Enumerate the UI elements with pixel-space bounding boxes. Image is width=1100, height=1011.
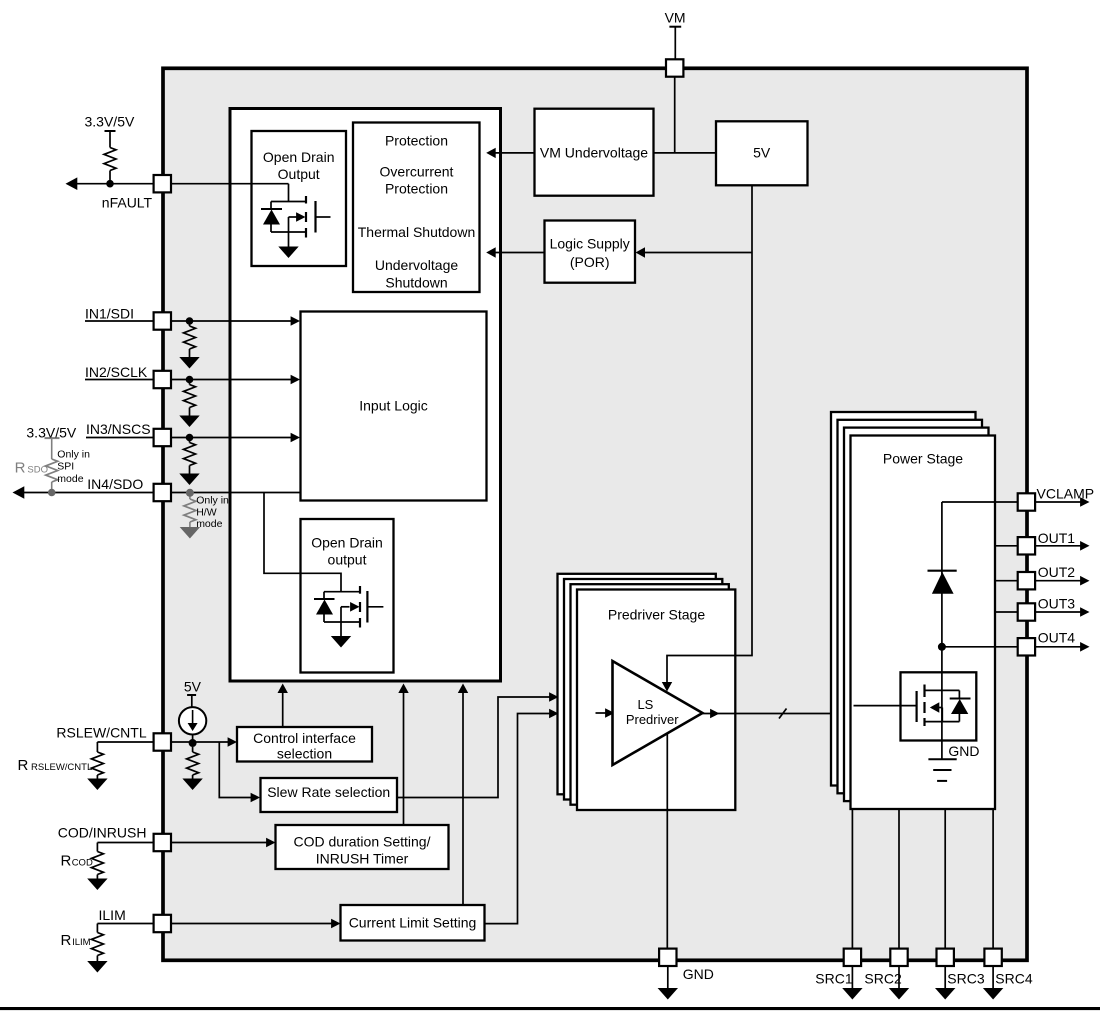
- svg-text:3.3V/5V: 3.3V/5V: [26, 425, 76, 441]
- svg-text:IN1/SDI: IN1/SDI: [85, 306, 134, 322]
- svg-text:IN4/SDO: IN4/SDO: [87, 476, 143, 492]
- svg-text:OUT3: OUT3: [1038, 596, 1076, 612]
- svg-text:Predriver: Predriver: [626, 712, 679, 727]
- svg-text:ILIM: ILIM: [72, 937, 91, 948]
- svg-text:IN3/NSCS: IN3/NSCS: [86, 421, 151, 437]
- svg-text:SRC1: SRC1: [815, 971, 853, 987]
- svg-text:Control interface: Control interface: [253, 730, 356, 746]
- svg-text:Shutdown: Shutdown: [385, 274, 447, 290]
- svg-text:VM Undervoltage: VM Undervoltage: [540, 144, 648, 160]
- svg-text:COD/INRUSH: COD/INRUSH: [58, 825, 147, 841]
- svg-text:IN2/SCLK: IN2/SCLK: [85, 364, 148, 380]
- svg-text:SDO: SDO: [27, 464, 48, 475]
- svg-text:Thermal Shutdown: Thermal Shutdown: [358, 224, 476, 240]
- svg-text:OUT2: OUT2: [1038, 564, 1076, 580]
- svg-text:output: output: [328, 552, 367, 568]
- svg-text:VM: VM: [665, 10, 686, 26]
- svg-text:Open Drain: Open Drain: [311, 535, 383, 551]
- svg-text:SRC4: SRC4: [995, 971, 1033, 987]
- svg-text:Open Drain: Open Drain: [263, 149, 335, 165]
- svg-text:Only in: Only in: [57, 449, 90, 461]
- svg-text:5V: 5V: [184, 679, 202, 695]
- svg-text:VCLAMP: VCLAMP: [1037, 486, 1095, 502]
- svg-text:R: R: [18, 757, 29, 774]
- svg-text:GND: GND: [948, 743, 979, 759]
- svg-text:Slew Rate selection: Slew Rate selection: [267, 784, 390, 800]
- svg-text:COD: COD: [72, 858, 93, 869]
- svg-text:COD duration Setting/: COD duration Setting/: [294, 834, 431, 850]
- svg-text:3.3V/5V: 3.3V/5V: [85, 114, 135, 130]
- svg-text:R: R: [61, 853, 72, 870]
- svg-text:Undervoltage: Undervoltage: [375, 257, 458, 273]
- svg-text:mode: mode: [57, 473, 83, 485]
- svg-text:LS: LS: [637, 697, 653, 712]
- svg-text:R: R: [61, 932, 72, 949]
- svg-text:Input Logic: Input Logic: [359, 398, 428, 414]
- svg-text:RSLEW/CNTL: RSLEW/CNTL: [56, 725, 146, 741]
- svg-text:R: R: [15, 459, 26, 476]
- svg-text:mode: mode: [196, 518, 222, 530]
- svg-text:H/W: H/W: [196, 507, 217, 519]
- svg-text:nFAULT: nFAULT: [102, 195, 153, 211]
- svg-text:Protection: Protection: [385, 132, 448, 148]
- svg-text:Power Stage: Power Stage: [883, 451, 963, 467]
- svg-text:SPI: SPI: [57, 461, 74, 473]
- svg-text:GND: GND: [683, 966, 714, 982]
- svg-text:RSLEW/CNTL: RSLEW/CNTL: [31, 762, 92, 773]
- svg-text:Only in: Only in: [196, 495, 229, 507]
- svg-text:(POR): (POR): [570, 254, 610, 270]
- svg-text:Overcurrent: Overcurrent: [380, 164, 454, 180]
- svg-text:Current Limit Setting: Current Limit Setting: [349, 915, 477, 931]
- svg-text:Logic Supply: Logic Supply: [550, 236, 630, 252]
- svg-text:ILIM: ILIM: [99, 907, 126, 923]
- svg-text:selection: selection: [277, 746, 332, 762]
- svg-text:5V: 5V: [753, 144, 771, 160]
- svg-text:SRC3: SRC3: [947, 971, 985, 987]
- svg-text:OUT1: OUT1: [1038, 530, 1076, 546]
- svg-text:INRUSH Timer: INRUSH Timer: [316, 851, 409, 867]
- svg-text:Predriver Stage: Predriver Stage: [608, 607, 705, 623]
- svg-text:Output: Output: [278, 166, 320, 182]
- svg-text:SRC2: SRC2: [864, 971, 902, 987]
- svg-text:Protection: Protection: [385, 181, 448, 197]
- svg-text:OUT4: OUT4: [1038, 630, 1076, 646]
